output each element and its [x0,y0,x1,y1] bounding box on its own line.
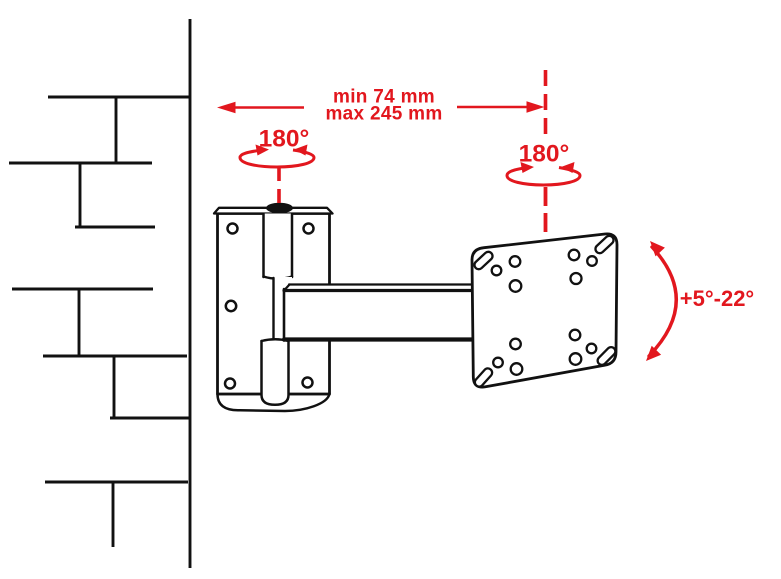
wall [9,19,190,568]
screw-hole [225,379,235,389]
dimension-arrowhead-left [217,102,236,113]
vesa-hole [570,353,582,365]
vesa-hole [510,256,521,267]
hinge-pivot-cap [266,203,293,214]
vesa-hole [492,266,502,276]
hinge-upper-fill [264,214,293,278]
tilt-indicator: +5°-22° [646,241,754,361]
dimension-arrowhead-right [527,101,545,112]
tilt-arc [649,247,676,356]
extension-dimension: min 74 mm max 245 mm [217,87,545,125]
tilt-arrowhead-bottom [646,346,661,361]
vesa-plate [472,234,617,388]
vesa-hole [570,330,581,341]
vesa-hole [510,339,521,350]
vesa-hole [571,273,582,284]
plate-swivel-indicator: 180° [507,70,580,238]
vesa-hole [493,358,503,368]
diagram-stage: min 74 mm max 245 mm 180° 180° +5°-22° [0,0,781,579]
hinge-lower-section [262,341,289,405]
wall-mount-diagram: min 74 mm max 245 mm 180° 180° +5°-22° [0,0,781,579]
plate-swivel-angle-label: 180° [519,141,570,168]
screw-hole [303,378,313,388]
extension-max-label: max 245 mm [325,104,442,125]
tilt-range-label: +5°-22° [680,286,754,311]
extension-arm [284,284,472,341]
vesa-hole [511,363,523,375]
vesa-hole [510,280,522,292]
screw-hole [228,224,238,234]
vesa-hole [587,344,597,354]
vesa-hole [587,256,597,266]
wall-swivel-indicator: 180° [240,126,314,204]
screw-hole [226,301,236,311]
screw-hole [304,224,314,234]
vesa-hole [569,250,580,261]
